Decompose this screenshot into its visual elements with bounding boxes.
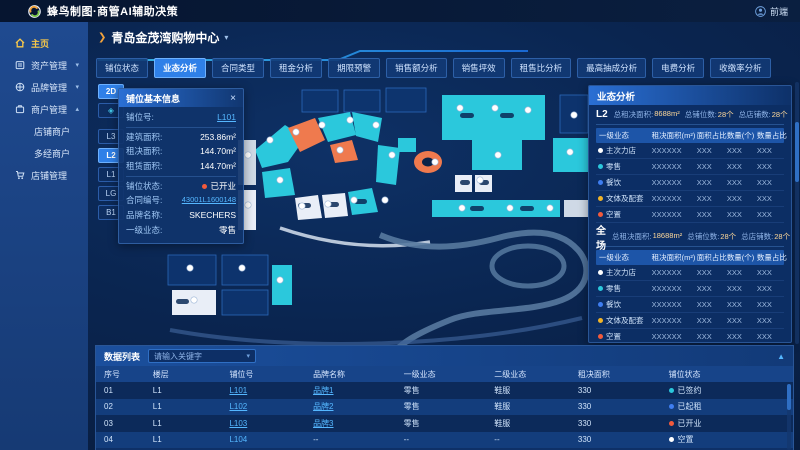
- data-list-panel: 数据列表 请输入关键字 ▾ ▲ 序号楼层铺位号品牌名称一级业态二级业态租决面积铺…: [95, 345, 794, 450]
- analysis-panel-title: 业态分析: [589, 86, 791, 105]
- sidebar-item-merchant[interactable]: 商户管理 ▴: [0, 98, 88, 120]
- table-scrollbar[interactable]: [787, 384, 791, 450]
- field-category: 一级业态: 零售: [126, 222, 236, 237]
- sidebar-item-home[interactable]: 主页: [0, 32, 88, 54]
- analysis-section-header: L2 总租决面积:8688m² 总铺位数:28个 总店铺数:28个: [596, 105, 784, 125]
- field-status: 铺位状态: 已开业: [126, 176, 236, 192]
- table-row[interactable]: 02 L1 L102 品牌2 零售 鞋服 330 已起租: [96, 399, 793, 416]
- analysis-row: 文体及配套 XXXXXX XXX XXX XXX: [596, 313, 784, 329]
- category-dot: [598, 212, 603, 217]
- chevron-down-icon: ▾: [247, 352, 251, 360]
- brand-link[interactable]: 品牌1: [313, 386, 333, 395]
- user-name: 前端: [770, 5, 788, 18]
- app-title: 蜂鸟制图·商管AI辅助决策: [47, 3, 178, 19]
- analysis-rows: 主次力店 XXXXXX XXX XXX XXX 零售 XXXXXX XXX: [596, 265, 784, 343]
- main-content: ❯ 青岛金茂湾购物中心 ▾ 铺位状态 业态分析 合同类型: [88, 22, 800, 450]
- column-header: 铺位号: [221, 369, 305, 380]
- shop-info-panel: 铺位基本信息 × 铺位号: L101 建筑面积: 253.86m² 租决面积: …: [118, 88, 244, 244]
- chevron-down-icon: ▾: [75, 83, 79, 91]
- table-row[interactable]: 03 L1 L103 品牌3 零售 鞋服 330 已开业: [96, 415, 793, 432]
- analysis-column-header: 数量占比: [754, 130, 784, 141]
- analysis-row: 主次力店 XXXXXX XXX XXX XXX: [596, 265, 784, 281]
- sidebar: 主页 资产管理 ▾ 品牌管理 ▾ 商户管理 ▴: [0, 22, 88, 450]
- analysis-row: 文体及配套 XXXXXX XXX XXX XXX: [596, 191, 784, 207]
- brand-link[interactable]: 品牌3: [313, 419, 333, 428]
- analysis-table-header: 一级业态租决面积(m²)面积占比数量(个)数量占比: [596, 250, 784, 265]
- user-menu[interactable]: 前端: [755, 5, 788, 18]
- tab[interactable]: 最高抽成分析: [577, 58, 646, 78]
- column-header: 二级业态: [486, 369, 570, 380]
- sidebar-item-merchant-multi[interactable]: 多经商户: [0, 142, 88, 164]
- category-dot: [598, 164, 603, 169]
- data-list-title: 数据列表: [104, 350, 140, 363]
- category-dot: [598, 148, 603, 153]
- tab[interactable]: 租售比分析: [511, 58, 572, 78]
- analysis-row: 餐饮 XXXXXX XXX XXX XXX: [596, 175, 784, 191]
- home-icon: [15, 38, 25, 48]
- shop-link[interactable]: L103: [229, 419, 247, 428]
- field-brand: 品牌名称: SKECHERS: [126, 207, 236, 222]
- shop-link[interactable]: L104: [229, 435, 247, 444]
- merchant-icon: [15, 104, 25, 114]
- tab[interactable]: 期限预警: [328, 58, 380, 78]
- table-row[interactable]: 04 L1 L104 -- -- -- 330 空置: [96, 432, 793, 449]
- category-dot: [598, 196, 603, 201]
- column-header: 铺位状态: [661, 369, 793, 380]
- app-header: 蜂鸟制图·商管AI辅助决策 前端: [0, 0, 800, 22]
- column-header: 一级业态: [396, 369, 487, 380]
- analysis-rows: 主次力店 XXXXXX XXX XXX XXX 零售 XXXXXX XXX: [596, 143, 784, 223]
- user-avatar-icon: [755, 6, 766, 17]
- status-dot: [669, 388, 674, 393]
- shop-link[interactable]: L102: [229, 402, 247, 411]
- field-build-area: 建筑面积: 253.86m²: [126, 127, 236, 143]
- status-dot: [669, 437, 674, 442]
- data-table-rows: 01 L1 L101 品牌1 零售 鞋服 330 已签约 02 L1: [96, 382, 793, 448]
- tab[interactable]: 销售额分析: [386, 58, 447, 78]
- mall-selector[interactable]: ❯ 青岛金茂湾购物中心 ▾: [98, 29, 528, 46]
- sidebar-item-shop-mgmt[interactable]: 店铺管理: [0, 164, 88, 186]
- table-row[interactable]: 01 L1 L101 品牌1 零售 鞋服 330 已签约: [96, 382, 793, 399]
- analysis-column-header: 面积占比: [694, 130, 724, 141]
- brand-link[interactable]: --: [313, 435, 318, 444]
- category-dot: [598, 286, 603, 291]
- analysis-column-header: 数量占比: [754, 252, 784, 263]
- analysis-column-header: 数量(个): [724, 130, 754, 141]
- chevron-right-icon: ❯: [98, 32, 106, 43]
- analysis-column-header: 数量(个): [724, 252, 754, 263]
- shop-no-link[interactable]: L101: [217, 112, 236, 122]
- analysis-row: 主次力店 XXXXXX XXX XXX XXX: [596, 143, 784, 159]
- data-table-header: 序号楼层铺位号品牌名称一级业态二级业态租决面积铺位状态: [96, 366, 793, 382]
- analysis-section-l2: L2 总租决面积:8688m² 总铺位数:28个 总店铺数:28个 一级业态租决…: [589, 105, 791, 223]
- tab[interactable]: 合同类型: [212, 58, 264, 78]
- sidebar-item-brand[interactable]: 品牌管理 ▾: [0, 76, 88, 98]
- tab[interactable]: 电费分析: [652, 58, 704, 78]
- field-lease-plan-area: 租决面积: 144.70m²: [126, 143, 236, 158]
- category-dot: [598, 318, 603, 323]
- analysis-section-all: 全场 总租决面积:18688m² 总铺位数:28个 总店铺数:28个 一级业态租…: [589, 227, 791, 343]
- shop-link[interactable]: L101: [229, 386, 247, 395]
- sidebar-item-merchant-shop[interactable]: 店铺商户: [0, 120, 88, 142]
- category-dot: [598, 334, 603, 339]
- category-dot: [598, 270, 603, 275]
- analysis-column-header: 租决面积(m²): [649, 130, 694, 141]
- close-icon[interactable]: ×: [230, 93, 236, 104]
- analysis-row: 餐饮 XXXXXX XXX XXX XXX: [596, 297, 784, 313]
- contract-link[interactable]: 43001L1600148: [182, 195, 236, 204]
- analysis-table-header: 一级业态租决面积(m²)面积占比数量(个)数量占比: [596, 128, 784, 143]
- cart-icon: [15, 170, 25, 180]
- app-root: 蜂鸟制图·商管AI辅助决策 前端 主页 资产管理: [0, 0, 800, 450]
- tab[interactable]: 收缴率分析: [710, 58, 771, 78]
- analysis-section-header: 全场 总租决面积:18688m² 总铺位数:28个 总店铺数:28个: [596, 227, 784, 247]
- column-header: 租决面积: [570, 369, 661, 380]
- shop-info-header: 铺位基本信息 ×: [119, 89, 243, 107]
- field-shop-no: 铺位号: L101: [126, 109, 236, 124]
- status-dot: [669, 404, 674, 409]
- business-analysis-panel: 业态分析 L2 总租决面积:8688m² 总铺位数:28个 总店铺数:28个 一…: [588, 85, 792, 343]
- hummingbird-logo-icon: [28, 5, 41, 18]
- brand-link[interactable]: 品牌2: [313, 402, 333, 411]
- sidebar-item-asset[interactable]: 资产管理 ▾: [0, 54, 88, 76]
- tab[interactable]: 销售坪效: [453, 58, 505, 78]
- mall-name: 青岛金茂湾购物中心: [111, 29, 219, 46]
- analysis-row: 零售 XXXXXX XXX XXX XXX: [596, 159, 784, 175]
- chevron-down-icon: ▾: [75, 61, 79, 69]
- chevron-down-icon: ▾: [224, 33, 228, 42]
- status-dot: [669, 421, 674, 426]
- status-dot: [202, 184, 207, 189]
- field-lease-area: 租赁面积: 144.70m²: [126, 158, 236, 173]
- column-header: 品牌名称: [305, 369, 396, 380]
- analysis-column-header: 一级业态: [596, 252, 649, 263]
- category-dot: [598, 180, 603, 185]
- analysis-row: 零售 XXXXXX XXX XXX XXX: [596, 281, 784, 297]
- analysis-tabs: 铺位状态 业态分析 合同类型 租金分析 期限预警 销售额分析 销售坪效 租售比分…: [96, 58, 771, 78]
- analysis-column-header: 一级业态: [596, 130, 649, 141]
- column-header: 序号: [96, 369, 145, 380]
- analysis-column-header: 面积占比: [694, 252, 724, 263]
- tab[interactable]: 业态分析: [154, 58, 206, 78]
- analysis-row: 空置 XXXXXX XXX XXX XXX: [596, 207, 784, 223]
- analysis-row: 空置 XXXXXX XXX XXX XXX: [596, 329, 784, 343]
- column-header: 楼层: [145, 369, 222, 380]
- chevron-up-icon: ▴: [75, 105, 79, 113]
- asset-icon: [15, 60, 25, 70]
- analysis-column-header: 租决面积(m²): [649, 252, 694, 263]
- keyword-filter-input[interactable]: 请输入关键字 ▾: [148, 349, 256, 363]
- data-list-toolbar: 数据列表 请输入关键字 ▾ ▲: [96, 346, 793, 366]
- category-dot: [598, 302, 603, 307]
- map-scrollbar[interactable]: [795, 82, 799, 344]
- collapse-panel-icon[interactable]: ▲: [777, 352, 785, 361]
- tab[interactable]: 铺位状态: [96, 58, 148, 78]
- field-contract: 合同编号: 43001L1600148: [126, 192, 236, 207]
- tab[interactable]: 租金分析: [270, 58, 322, 78]
- brand-icon: [15, 82, 25, 92]
